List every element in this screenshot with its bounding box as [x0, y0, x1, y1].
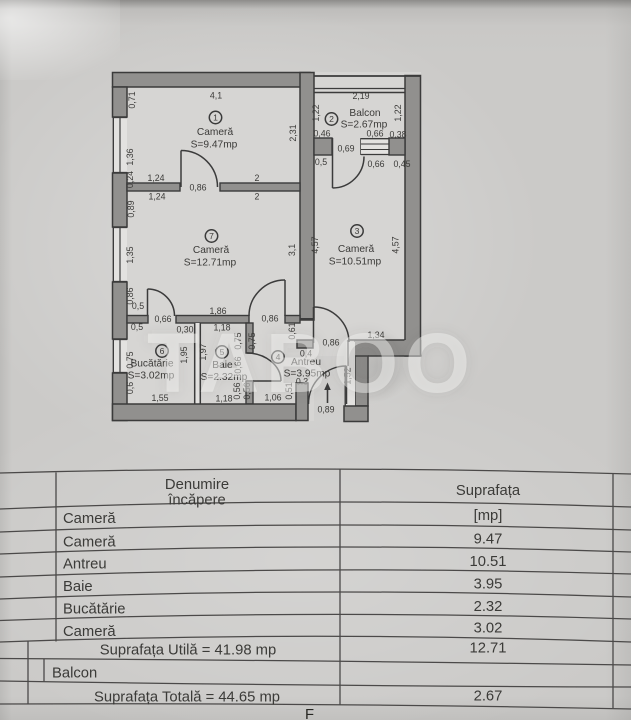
- svg-text:Balcon: Balcon: [349, 108, 380, 119]
- svg-text:Cameră: Cameră: [338, 244, 375, 255]
- svg-text:4,57: 4,57: [391, 236, 401, 253]
- svg-text:2: 2: [255, 192, 260, 202]
- svg-text:Cameră: Cameră: [193, 245, 230, 256]
- svg-text:TABOO: TABOO: [147, 316, 477, 410]
- svg-text:Suprafața Utilă = 41.98 mp: Suprafața Utilă = 41.98 mp: [100, 643, 276, 659]
- svg-text:Suprafața Totală = 44.65 mp: Suprafața Totală = 44.65 mp: [94, 690, 280, 706]
- svg-text:1,22: 1,22: [311, 104, 321, 121]
- svg-text:9.47: 9.47: [474, 532, 503, 548]
- svg-text:1,22: 1,22: [393, 104, 403, 121]
- svg-text:0,66: 0,66: [367, 159, 384, 169]
- svg-text:2.32: 2.32: [474, 599, 503, 615]
- svg-text:4,57: 4,57: [310, 236, 320, 253]
- svg-text:10.51: 10.51: [469, 554, 506, 570]
- svg-text:Denumire: Denumire: [165, 477, 229, 493]
- svg-text:S=10.51mp: S=10.51mp: [329, 257, 382, 268]
- svg-text:0,66: 0,66: [366, 129, 383, 139]
- svg-text:0,46: 0,46: [313, 129, 330, 139]
- svg-text:0,5: 0,5: [315, 157, 327, 167]
- svg-text:7: 7: [209, 231, 214, 241]
- svg-text:0,71: 0,71: [127, 91, 137, 108]
- svg-text:Cameră: Cameră: [63, 511, 116, 527]
- svg-text:0,45: 0,45: [393, 159, 410, 169]
- svg-text:1,24: 1,24: [147, 173, 164, 183]
- svg-text:0,75: 0,75: [125, 351, 135, 368]
- svg-text:2: 2: [255, 173, 260, 183]
- svg-text:2.67: 2.67: [474, 689, 503, 705]
- svg-text:3.95: 3.95: [474, 577, 503, 593]
- svg-text:3,1: 3,1: [287, 244, 297, 256]
- svg-text:0,24: 0,24: [125, 171, 135, 188]
- svg-text:0,6: 0,6: [125, 382, 135, 394]
- svg-text:Balcon: Balcon: [52, 666, 97, 682]
- svg-text:12.71: 12.71: [469, 641, 506, 657]
- svg-text:3: 3: [355, 226, 360, 236]
- svg-text:S=12.71mp: S=12.71mp: [184, 258, 237, 269]
- svg-text:Suprafața: Suprafața: [456, 483, 521, 499]
- svg-text:4,1: 4,1: [210, 91, 222, 101]
- svg-text:Cameră: Cameră: [63, 624, 116, 640]
- svg-text:Bucătărie: Bucătărie: [63, 602, 126, 618]
- svg-text:2,31: 2,31: [288, 124, 298, 141]
- svg-text:0,5: 0,5: [131, 322, 143, 332]
- svg-text:S=9.47mp: S=9.47mp: [191, 140, 238, 151]
- svg-text:1,86: 1,86: [209, 306, 226, 316]
- svg-text:1,24: 1,24: [148, 192, 165, 202]
- svg-text:Cameră: Cameră: [63, 535, 116, 551]
- svg-text:0,69: 0,69: [337, 144, 354, 154]
- svg-text:0,86: 0,86: [125, 287, 135, 304]
- svg-text:[mp]: [mp]: [474, 508, 503, 524]
- svg-text:Antreu: Antreu: [63, 557, 107, 573]
- svg-text:1,36: 1,36: [125, 148, 135, 165]
- svg-text:2,19: 2,19: [352, 91, 369, 101]
- svg-text:3.02: 3.02: [474, 621, 503, 637]
- svg-text:0,86: 0,86: [189, 183, 206, 193]
- svg-text:1,35: 1,35: [125, 246, 135, 263]
- svg-text:1: 1: [213, 113, 218, 123]
- svg-text:Baie: Baie: [63, 579, 93, 595]
- svg-text:2: 2: [329, 114, 334, 124]
- svg-text:Cameră: Cameră: [197, 127, 234, 138]
- svg-text:0,38: 0,38: [389, 130, 406, 140]
- svg-text:F: F: [305, 707, 314, 720]
- svg-text:0,89: 0,89: [126, 200, 136, 217]
- svg-text:încăpere: încăpere: [167, 493, 226, 509]
